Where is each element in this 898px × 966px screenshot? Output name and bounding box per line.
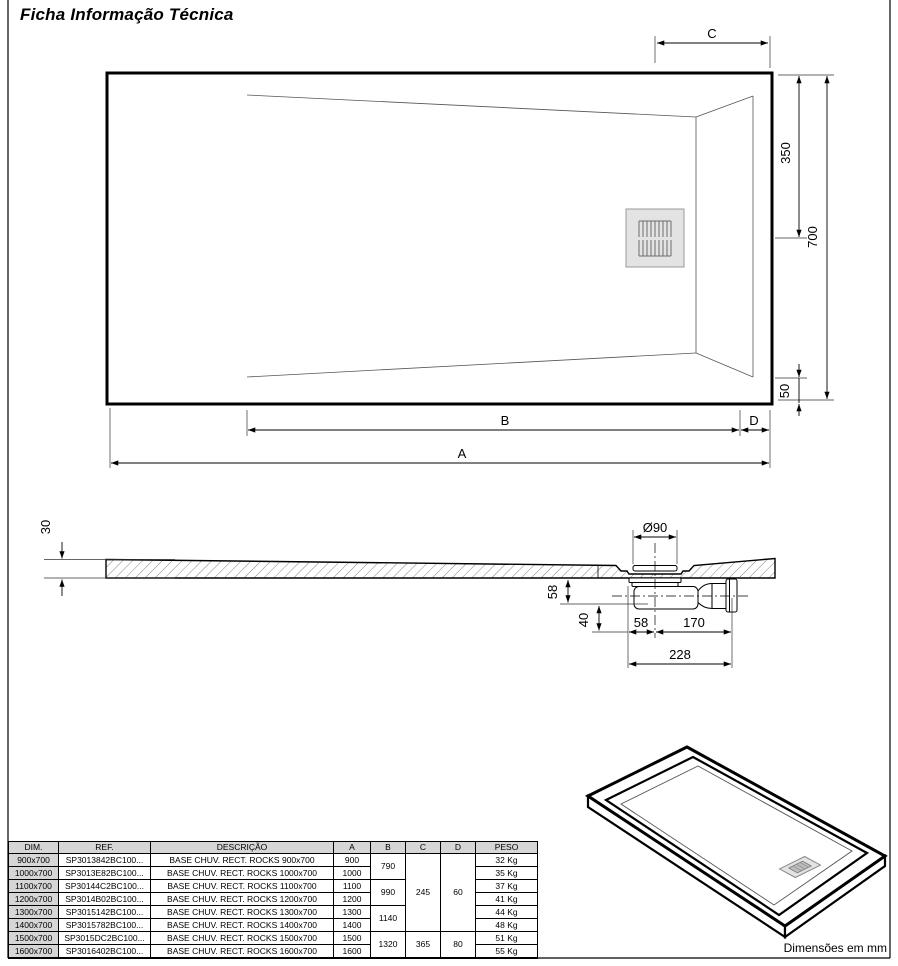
table-cell: 1600x700 [9,945,59,959]
table-cell: 55 Kg [476,945,538,959]
table-cell: 60 [441,854,476,932]
table-cell: 1100 [334,880,371,893]
table-cell: 245 [406,854,441,932]
table-cell: SP3015782BC100... [59,919,151,932]
table-row: 900x700SP3013842BC100...BASE CHUV. RECT.… [9,854,538,867]
dim-label-350: 350 [778,142,793,164]
dim-label-700: 700 [805,226,820,248]
col-header-a: A [334,842,371,854]
table-cell: SP30144C2BC100... [59,880,151,893]
technical-sheet: Ficha Informação Técnica [0,0,898,966]
table-cell: SP3015DC2BC100... [59,932,151,945]
table-cell: 1200x700 [9,893,59,906]
col-header-dim: DIM. [9,842,59,854]
col-header-descrio: DESCRIÇÃO [151,842,334,854]
table-cell: BASE CHUV. RECT. ROCKS 1600x700 [151,945,334,959]
units-note: Dimensões em mm [784,941,887,955]
spec-table: DIM.REF.DESCRIÇÃOABCDPESO 900x700SP30138… [8,841,538,959]
table-cell: 1100x700 [9,880,59,893]
technical-drawing: C 350 700 50 B D A [0,0,898,966]
col-header-peso: PESO [476,842,538,854]
table-cell: 37 Kg [476,880,538,893]
dim-label-a: A [458,446,467,461]
table-row: 1500x700SP3015DC2BC100...BASE CHUV. RECT… [9,932,538,945]
col-header-d: D [441,842,476,854]
table-cell: 35 Kg [476,867,538,880]
dim-label-30: 30 [38,520,53,534]
table-cell: SP3016402BC100... [59,945,151,959]
dim-label-40: 40 [576,613,591,627]
table-cell: 1400 [334,919,371,932]
table-cell: SP3013842BC100... [59,854,151,867]
dim-label-50: 50 [777,384,792,398]
dim-label-58v: 58 [545,585,560,599]
dim-label-dia90: Ø90 [643,520,668,535]
table-cell: 1600 [334,945,371,959]
table-cell: 1500x700 [9,932,59,945]
table-cell: 80 [441,932,476,959]
table-cell: 32 Kg [476,854,538,867]
table-cell: 1000x700 [9,867,59,880]
table-cell: 1200 [334,893,371,906]
table-cell: 1300x700 [9,906,59,919]
drain-grate-top [626,209,684,267]
table-cell: BASE CHUV. RECT. ROCKS 1400x700 [151,919,334,932]
table-cell: 44 Kg [476,906,538,919]
table-cell: 51 Kg [476,932,538,945]
side-view [106,543,775,638]
table-cell: 365 [406,932,441,959]
dim-label-170: 170 [683,615,705,630]
table-cell: 1140 [371,906,406,932]
table-cell: BASE CHUV. RECT. ROCKS 1000x700 [151,867,334,880]
table-cell: 48 Kg [476,919,538,932]
perspective-view [588,747,885,937]
table-cell: 900x700 [9,854,59,867]
dim-label-c: C [707,26,716,41]
table-cell: SP3014B02BC100... [59,893,151,906]
table-cell: SP3013E82BC100... [59,867,151,880]
table-cell: 990 [371,880,406,906]
table-cell: SP3015142BC100... [59,906,151,919]
table-cell: BASE CHUV. RECT. ROCKS 900x700 [151,854,334,867]
col-header-ref: REF. [59,842,151,854]
table-cell: 790 [371,854,406,880]
col-header-b: B [371,842,406,854]
table-cell: BASE CHUV. RECT. ROCKS 1200x700 [151,893,334,906]
table-cell: 900 [334,854,371,867]
table-cell: 1320 [371,932,406,959]
dim-label-58h: 58 [634,615,648,630]
table-cell: 41 Kg [476,893,538,906]
side-view-dimensions: 30 Ø90 58 40 58 170 228 [38,520,732,668]
dim-label-b: B [501,413,510,428]
dim-label-228: 228 [669,647,691,662]
table-cell: BASE CHUV. RECT. ROCKS 1500x700 [151,932,334,945]
table-cell: BASE CHUV. RECT. ROCKS 1300x700 [151,906,334,919]
table-cell: 1000 [334,867,371,880]
siphon-section [629,578,737,612]
top-view [107,73,772,404]
col-header-c: C [406,842,441,854]
table-header-row: DIM.REF.DESCRIÇÃOABCDPESO [9,842,538,854]
table-cell: 1500 [334,932,371,945]
table-cell: 1400x700 [9,919,59,932]
table-cell: BASE CHUV. RECT. ROCKS 1100x700 [151,880,334,893]
table-cell: 1300 [334,906,371,919]
dim-label-d: D [749,413,758,428]
